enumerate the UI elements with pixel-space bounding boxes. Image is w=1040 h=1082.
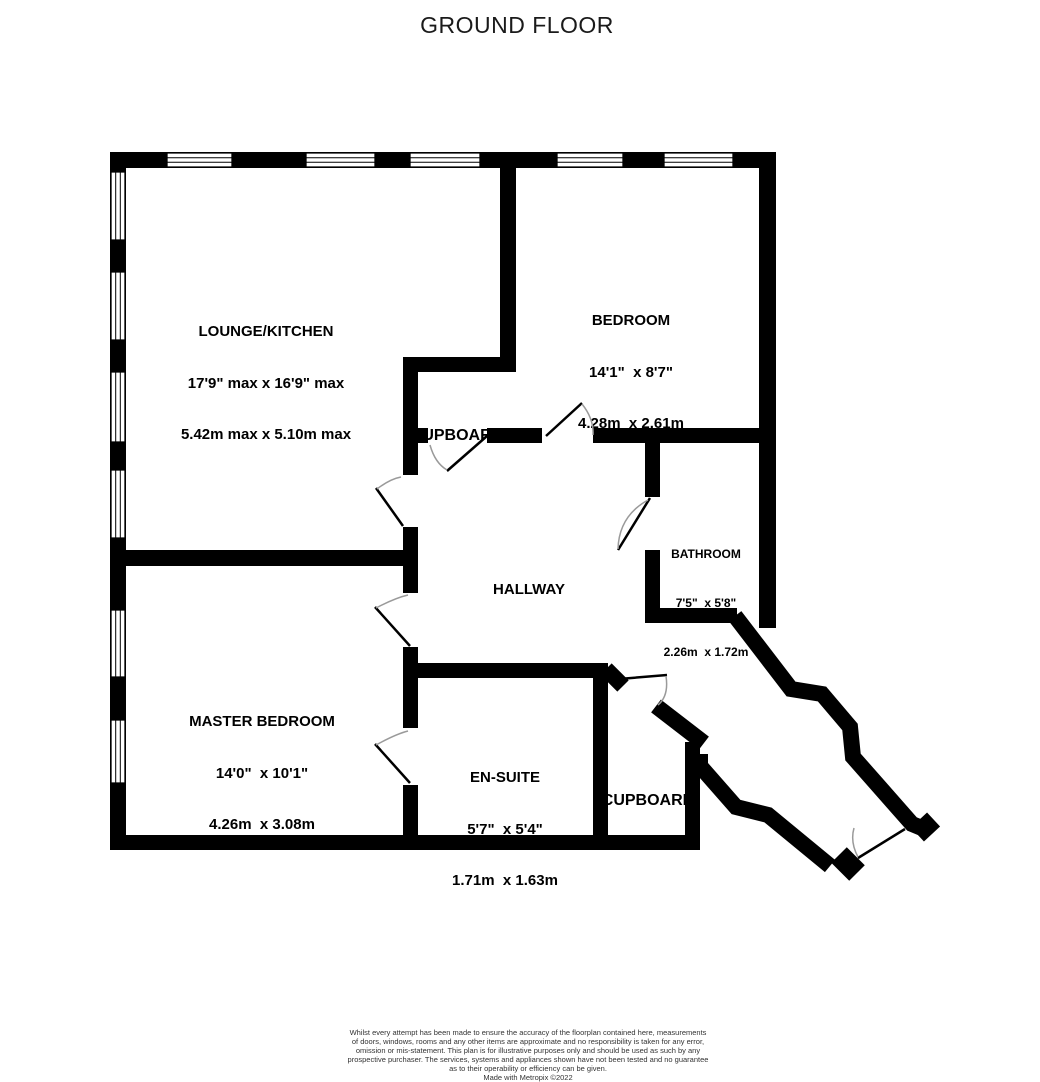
disclaimer-line: as to their operability or efficiency ca… — [0, 1064, 1040, 1073]
disclaimer-credit: Made with Metropix ©2022 — [0, 1073, 1040, 1082]
corridor-walls — [606, 616, 929, 866]
corridor-door-posts — [839, 820, 932, 873]
window-glazing-lines — [116, 158, 733, 783]
disclaimer-line: of doors, windows, rooms and any other i… — [0, 1037, 1040, 1046]
floorplan-drawing — [0, 0, 1040, 1080]
floorplan-page: GROUND FLOOR LOUNGE/KITCHEN 17'9" max x … — [0, 0, 1040, 1080]
wall-segments — [110, 152, 776, 850]
disclaimer-line: Whilst every attempt has been made to en… — [0, 1028, 1040, 1037]
disclaimer-line: prospective purchaser. The services, sys… — [0, 1055, 1040, 1064]
window-panes — [111, 153, 733, 783]
door-swing-arcs — [376, 404, 858, 857]
disclaimer-line: omission or mis-statement. This plan is … — [0, 1046, 1040, 1055]
disclaimer-text: Whilst every attempt has been made to en… — [0, 1028, 1040, 1082]
floorplan-title: GROUND FLOOR — [0, 12, 1034, 39]
door-leaf-lines — [375, 403, 905, 858]
